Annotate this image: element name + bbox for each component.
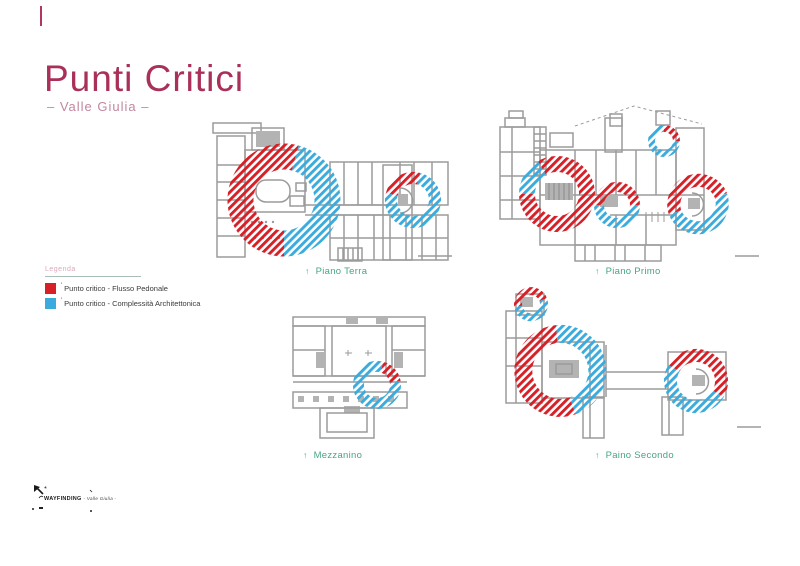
critical-point-rings-piano-primo (527, 129, 722, 228)
critical-point-rings-paino-secondo (518, 291, 721, 408)
decorative-dash (39, 507, 43, 509)
wayfinding-logo-text: WAYFINDING - Valle Giulia - (44, 496, 116, 502)
up-arrow-icon: ↑ (595, 266, 600, 276)
plan-label: Mezzanino (314, 450, 363, 461)
logo-title: WAYFINDING (44, 496, 82, 502)
up-arrow-icon: ↑ (303, 450, 308, 460)
caption-mezzanino: ↑Mezzanino (303, 450, 362, 461)
caption-piano-terra: ↑Piano Terra (305, 266, 367, 277)
caption-piano-primo: ↑Piano Primo (595, 266, 661, 277)
up-arrow-icon: ↑ (595, 450, 600, 460)
floorplans-drawing (0, 0, 800, 566)
plan-label: Paino Secondo (606, 450, 674, 461)
logo-subtitle: - Valle Giulia - (83, 496, 116, 501)
decorative-dot (32, 508, 34, 510)
up-arrow-icon: ↑ (305, 266, 310, 276)
decorative-dot (90, 510, 92, 512)
caption-paino-secondo: ↑Paino Secondo (595, 450, 674, 461)
wayfinding-logo: WAYFINDING - Valle Giulia - (30, 484, 140, 518)
poster-page: Punti Critici – Valle Giulia – Legenda '… (0, 0, 800, 566)
plan-label: Piano Terra (316, 266, 368, 277)
plan-label: Piano Primo (606, 266, 661, 277)
